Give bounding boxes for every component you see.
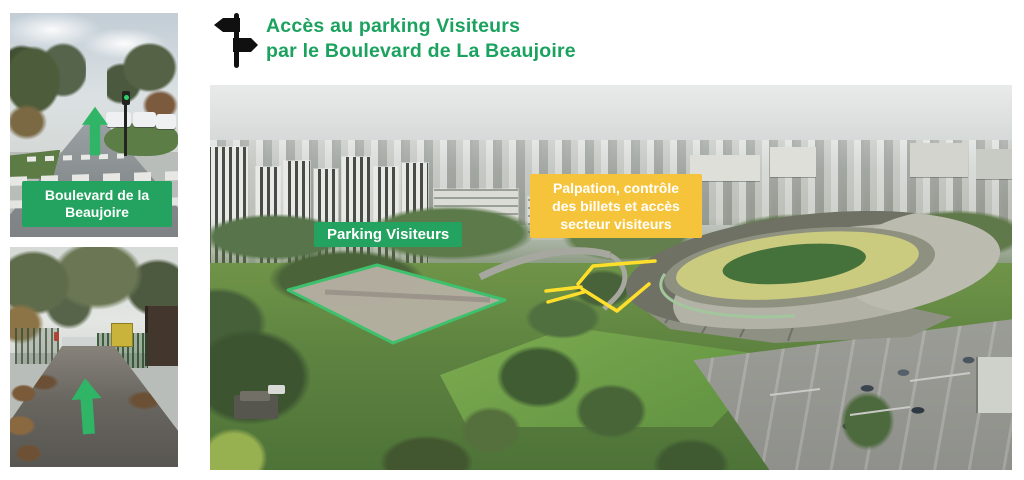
parked-van (156, 114, 176, 130)
street-photo: Boulevard de la Beaujoire (10, 13, 178, 237)
up-arrow-icon (82, 105, 108, 157)
page-title-line1: Accès au parking Visiteurs (266, 14, 686, 39)
street-name-label: Boulevard de la Beaujoire (22, 181, 172, 227)
gate-photo (10, 247, 178, 467)
house-roof (240, 391, 270, 401)
page-title: Accès au parking Visiteurs par le Boulev… (266, 14, 686, 64)
infographic-page: Accès au parking Visiteurs par le Boulev… (0, 0, 1024, 480)
visitors-parking-area (288, 265, 505, 343)
lot-markings (770, 373, 970, 415)
aerial-photo: Parking Visiteurs Palpation, contrôle de… (210, 85, 1012, 470)
fallen-leaves (10, 375, 44, 467)
fence (15, 328, 59, 363)
aerial-overlay (210, 85, 1012, 470)
security-check-line2: des billets et accès (543, 197, 689, 215)
yellow-sign (111, 323, 133, 347)
parking-visiteurs-label: Parking Visiteurs (314, 222, 462, 247)
parked-van (133, 112, 157, 128)
signpost-icon (212, 10, 260, 72)
up-arrow-icon (70, 374, 104, 438)
wooden-cabin (145, 306, 178, 365)
red-post (54, 332, 59, 341)
security-check-line1: Palpation, contrôle (543, 179, 689, 197)
green-light (124, 95, 129, 100)
access-road (480, 251, 610, 277)
white-van (268, 385, 285, 394)
page-title-line2: par le Boulevard de La Beaujoire (266, 39, 686, 64)
security-check-label: Palpation, contrôle des billets et accès… (530, 174, 702, 238)
security-check-line3: secteur visiteurs (543, 215, 689, 233)
